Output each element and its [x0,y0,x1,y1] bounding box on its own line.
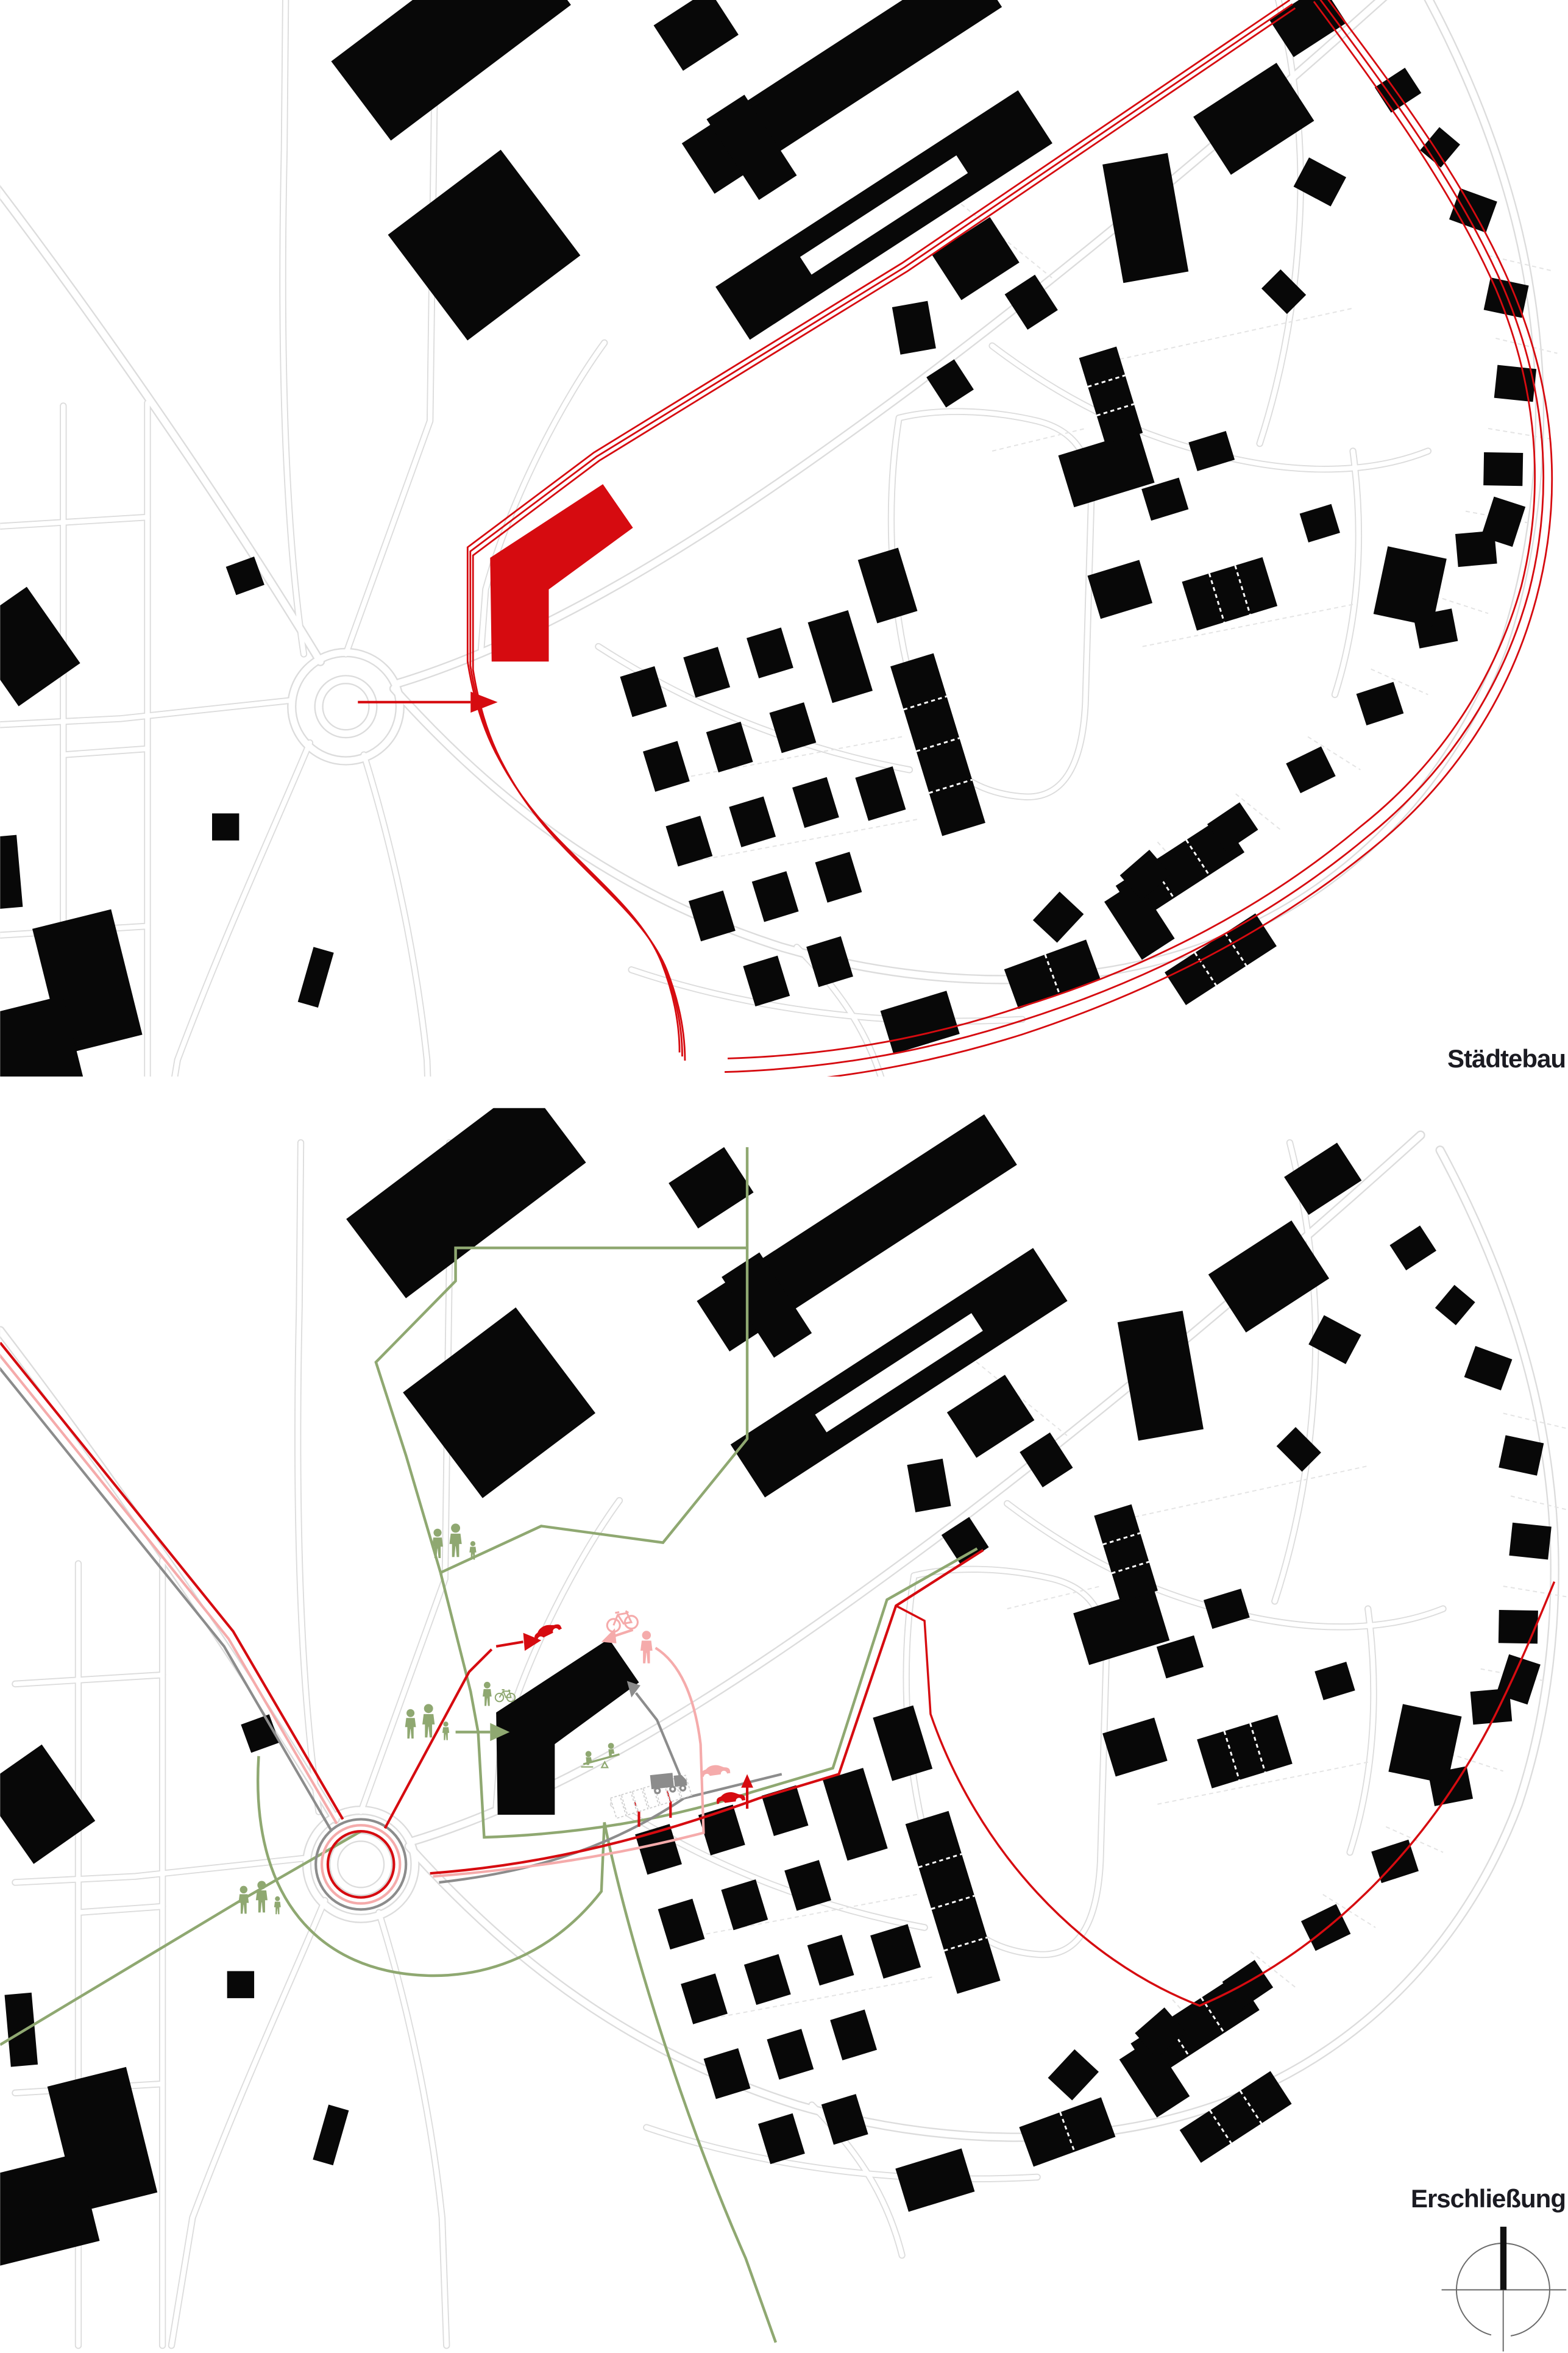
car-icon [701,1763,731,1777]
panel-label-erschliessung: Erschließung [1411,2186,1566,2212]
panel-staedtebau-map [0,0,1557,1187]
project-building-black [496,1639,639,1815]
pedestrian-family-icon [432,1523,476,1559]
north-needle [1500,2227,1506,2290]
bike-icon [605,1609,639,1633]
entry-arrow-red [358,692,497,713]
north-compass-icon [1442,2227,1567,2352]
panel-label-staedtebau: Städtebau [1447,1046,1566,1072]
poster-canvas: Städtebau Erschließung [0,0,1568,2353]
panel-erschliessung-map [0,1083,1568,2346]
site-plan-graphic [0,0,1568,2353]
person-with-bike-icon [483,1682,515,1706]
pedestrian-family-icon [238,1881,280,1914]
pedestrian-icon [640,1631,653,1663]
